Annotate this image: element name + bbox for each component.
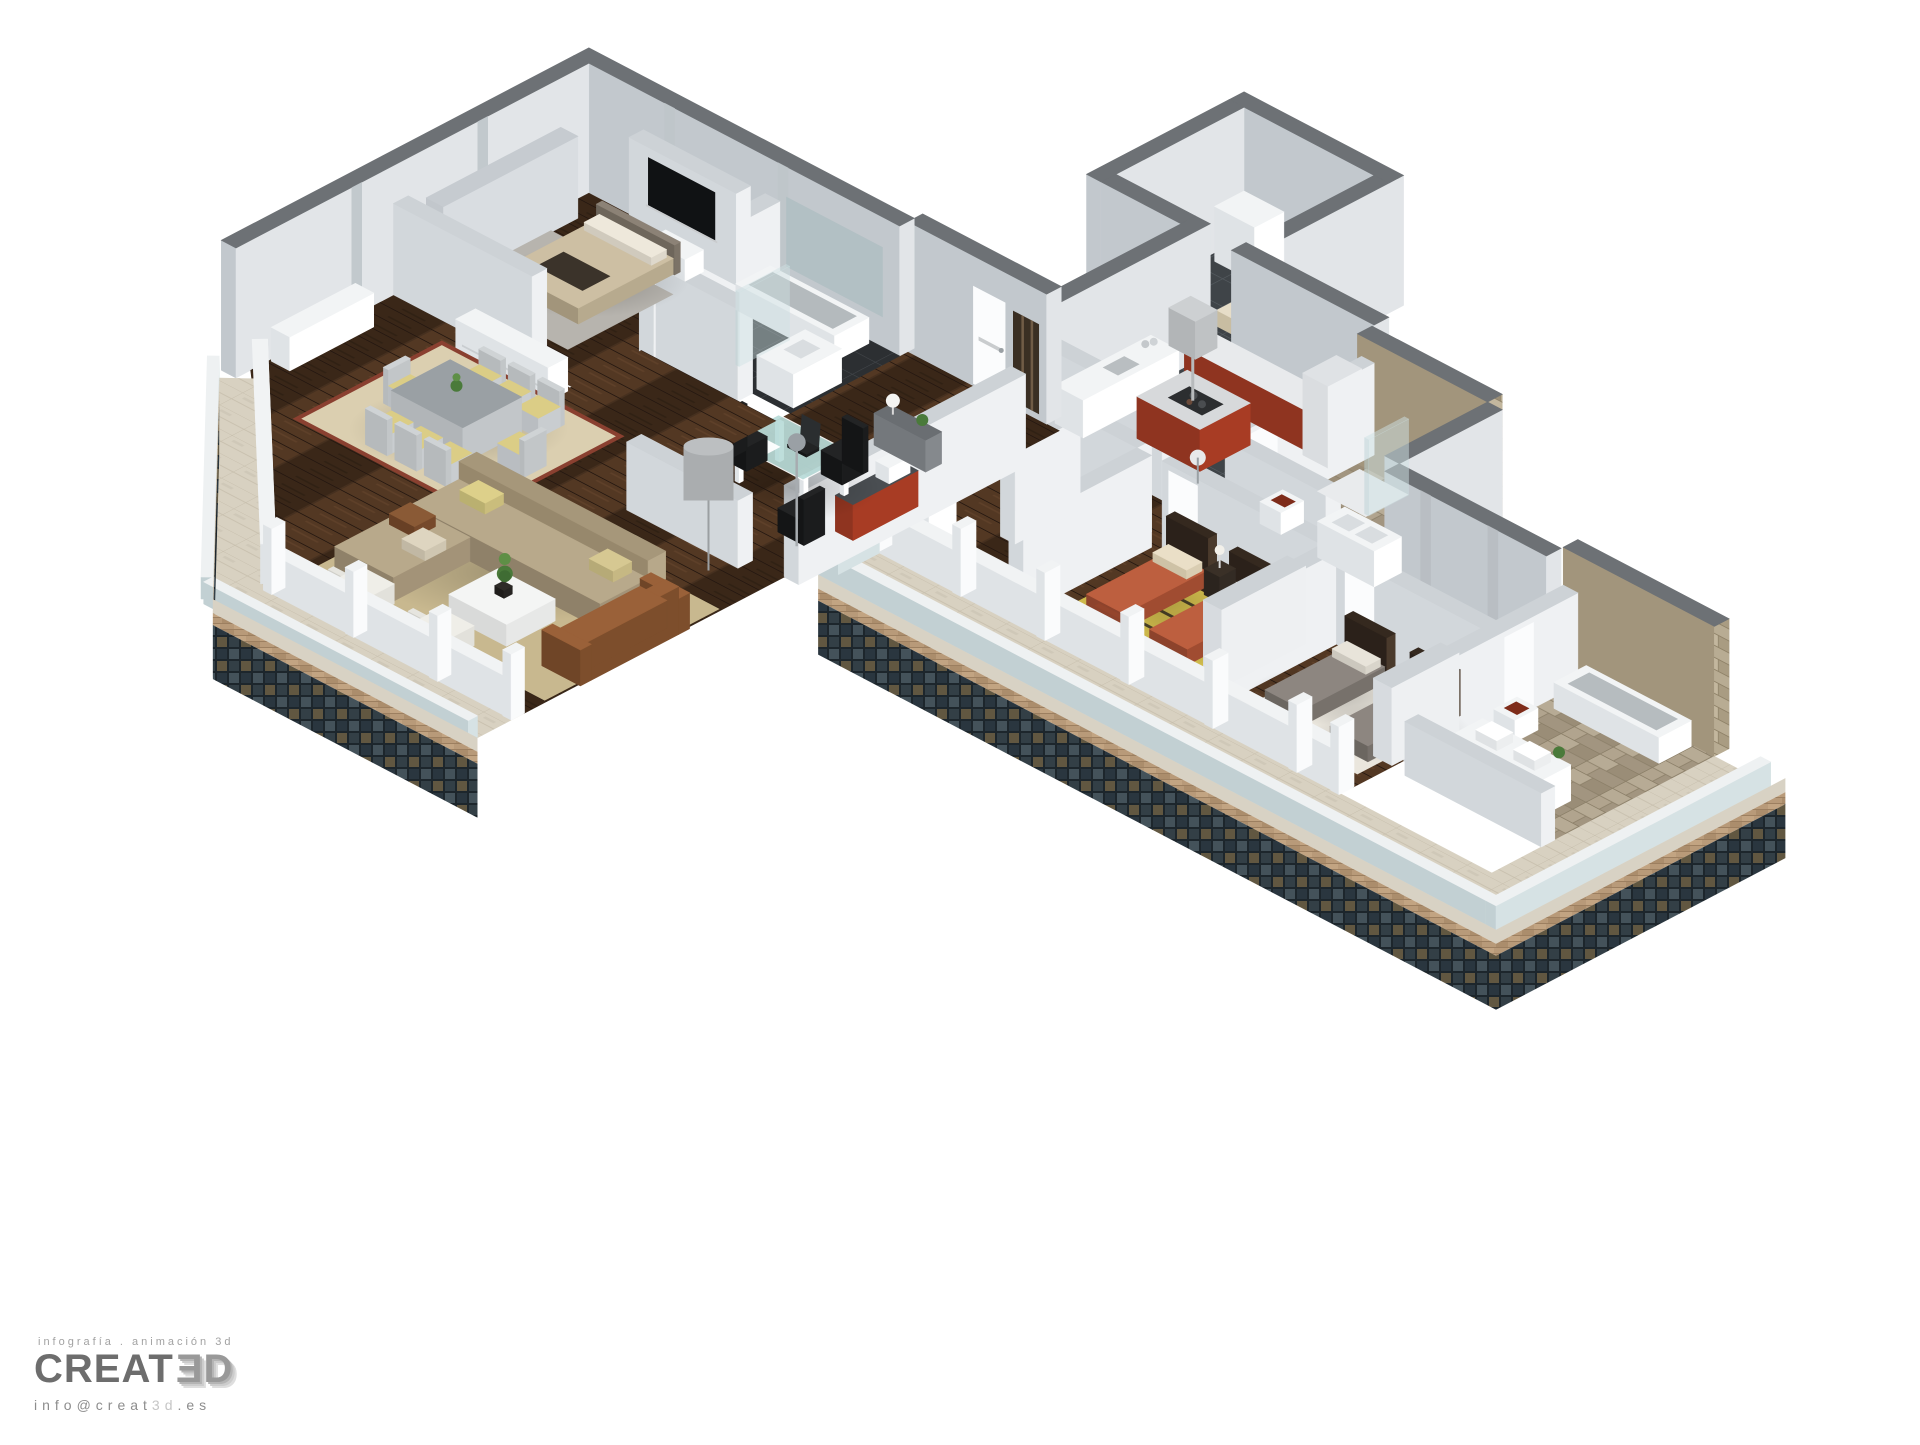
office-chair-back bbox=[842, 415, 868, 475]
logo-text-creat: CREAT bbox=[34, 1347, 174, 1391]
kitchen-jar bbox=[1150, 338, 1158, 346]
creat3d-logo: infografía . animación 3d CREATƎD info@c… bbox=[34, 1336, 354, 1413]
hob-burner bbox=[1198, 400, 1206, 408]
table-plant bbox=[451, 380, 463, 392]
window-post bbox=[1037, 560, 1061, 640]
coffee-plant bbox=[499, 553, 511, 565]
window-post bbox=[1289, 692, 1313, 772]
office-chair-back bbox=[799, 486, 825, 546]
drum-lamp-top bbox=[684, 438, 734, 456]
logo-email: info@creat3d.es bbox=[34, 1397, 354, 1413]
door-handle bbox=[999, 348, 1004, 353]
logo-wordmark: CREATƎD bbox=[34, 1349, 354, 1389]
window-post bbox=[953, 516, 977, 596]
entry-ball-lamp bbox=[886, 394, 900, 408]
floor-lamp-shade bbox=[788, 433, 806, 451]
nightstand-lamp bbox=[1215, 545, 1225, 555]
window-post bbox=[1331, 714, 1355, 794]
window-post bbox=[429, 604, 451, 681]
entry-plant bbox=[916, 414, 928, 426]
logo-text-3d: ƎD bbox=[176, 1347, 234, 1391]
entry-mirror-grid bbox=[1031, 320, 1034, 411]
window-post bbox=[503, 643, 525, 720]
window-post bbox=[263, 517, 285, 594]
kitchen-jar bbox=[1141, 340, 1149, 348]
window-post bbox=[1121, 604, 1145, 684]
window-post bbox=[1205, 648, 1229, 728]
ensuite-plant bbox=[1553, 746, 1565, 758]
window-post bbox=[345, 560, 367, 637]
kitchen-fridge bbox=[1303, 355, 1362, 468]
floorplan-render bbox=[0, 0, 1920, 1440]
apartment bbox=[201, 48, 1785, 1010]
table-plant bbox=[453, 373, 461, 381]
coffee-plant bbox=[499, 570, 511, 582]
